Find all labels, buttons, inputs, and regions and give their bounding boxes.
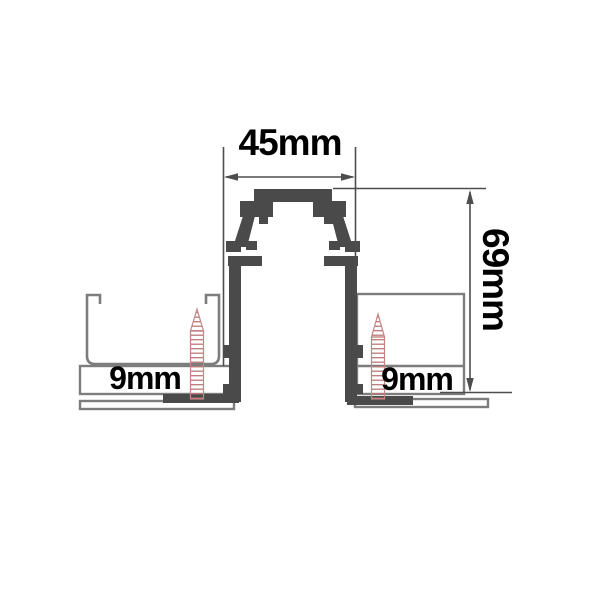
profile-hook-left — [259, 214, 268, 224]
profile-flange-right — [324, 256, 358, 266]
profile-flange-left — [228, 256, 262, 266]
dimension-label-width: 45mm — [222, 124, 358, 161]
profile-clip-left-inner — [246, 241, 257, 250]
dimension-label-thickness-left: 9mm — [89, 362, 201, 394]
profile-clip-left-outer — [226, 241, 241, 252]
profile-wing-left — [240, 201, 273, 217]
screw-left-tip — [191, 309, 204, 331]
profile-clip-right-inner — [329, 241, 340, 250]
arrow-45-left — [224, 173, 238, 181]
arrow-45-right — [341, 173, 355, 181]
profile-leg-left — [229, 266, 241, 402]
profile-clip-right-outer — [345, 241, 360, 252]
arrow-69-up — [466, 190, 473, 204]
profile-top-cap — [254, 189, 332, 202]
dimension-label-height: 69mm — [477, 228, 514, 331]
profile-cross-section-diagram: 45mm 69mm 9mm 9mm — [0, 0, 600, 600]
dimension-label-thickness-right: 9mm — [361, 363, 473, 395]
profile-hook-right — [324, 214, 333, 224]
profile-leg-right-lug-1 — [357, 345, 363, 358]
profile-leg-left-lug-2 — [223, 384, 229, 394]
